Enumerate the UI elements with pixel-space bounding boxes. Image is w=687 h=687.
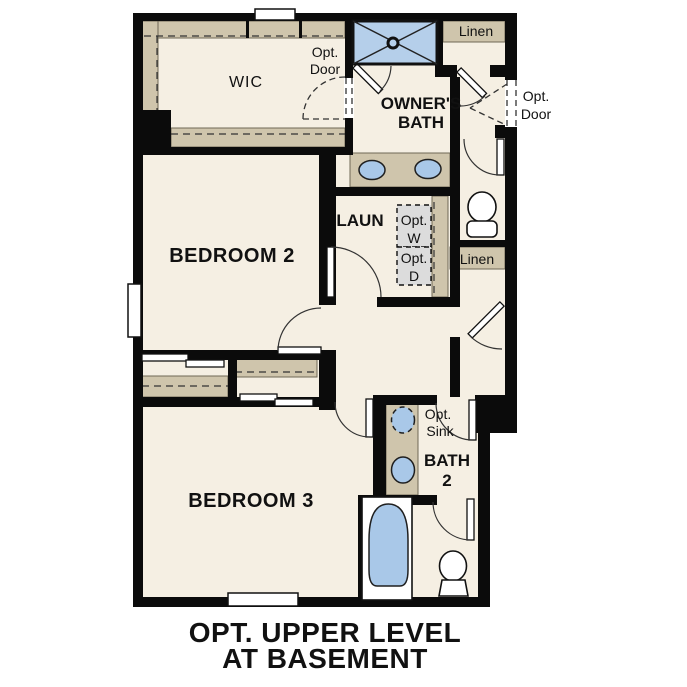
wc-door-leaf [497,139,504,175]
hall-opt-door-label-1: Opt. [523,88,549,104]
tub [369,504,408,586]
closet-left-bypass-panel-2 [186,360,224,367]
wall-bath2-top [373,395,437,405]
wic-bottom-shelf [171,128,345,147]
wall-notch-block [475,395,517,433]
opt-washer-label-1: Opt. [401,212,427,228]
wic-left-shelf [142,21,158,115]
wic-shelf-divider-2 [299,21,302,38]
wic-opt-door-label-2: Door [310,61,341,77]
wall-linen-stub-left [435,65,457,77]
opt-washer-label-2: W [407,230,421,246]
wall-laundry-bottom [377,297,452,307]
shower-drain [388,38,398,48]
linen-mid-label: Linen [460,251,494,267]
wall-linen-stub-right [490,65,517,77]
wall-bath2-left [373,395,386,495]
bath2-inner-door-leaf [467,499,474,540]
wc-toilet-bowl [468,192,496,222]
window-top [255,9,295,20]
laundry-side-counter [432,196,448,297]
caption: OPT. UPPER LEVEL AT BASEMENT [189,617,462,674]
closet-left-bypass-panel-1 [142,354,188,361]
linen-top-label: Linen [459,23,493,39]
opening-linen2-door [450,307,460,337]
opt-dryer-label-2: D [409,268,419,284]
wic-label: WIC [229,74,263,91]
wall-bath-laundry [336,187,457,196]
closet-right-bypass-panel-1 [240,394,277,401]
laundry-label: LAUN [336,211,383,230]
owners-bath-label-1: OWNER'S [381,94,462,113]
opening-bedroom2-door [319,305,336,350]
bedroom3-door-leaf [366,399,373,437]
hall-opt-door-label-2: Door [521,106,552,122]
floor-plan-svg: WIC Opt. Door Linen OWNER'S BATH Opt. Do… [0,0,687,687]
bath2-toilet-bowl [440,551,467,581]
laundry-door-leaf [327,247,334,297]
wall-wc-left [450,77,460,397]
bath2-entry-door-leaf [469,400,476,440]
wall-top [133,13,517,21]
window-bottom [228,593,298,606]
bath2-sink [392,457,415,483]
bedroom3-label: BEDROOM 3 [188,490,314,512]
window-left [128,284,141,337]
wc-toilet-tank [467,221,497,237]
bath2-opt-sink [392,407,415,433]
wic-shelf-divider-1 [246,21,249,38]
opt-dryer-label-1: Opt. [401,250,427,266]
bath2-label-2: 2 [442,471,451,490]
caption-line-2: AT BASEMENT [222,643,428,674]
bedroom2-door-leaf [278,347,321,354]
bath2-label-1: BATH [424,451,470,470]
opt-sink-label-1: Opt. [425,406,451,422]
wall-bottom [133,597,490,607]
floor-plan-image: WIC Opt. Door Linen OWNER'S BATH Opt. Do… [0,0,687,687]
wall-wc-linen2 [450,240,505,247]
bath2-toilet-base [439,580,468,596]
opt-sink-label-2: Sink [426,423,454,439]
closet-right-shelf [235,358,317,377]
closet-right-bypass-panel-2 [275,399,313,406]
owners-sink-left [359,161,385,180]
owners-sink-right [415,160,441,179]
wic-opt-door-label-1: Opt. [312,44,338,60]
owners-bath-label-2: BATH [398,113,444,132]
bedroom2-label: BEDROOM 2 [169,245,295,267]
wall-right-lower [478,420,490,607]
